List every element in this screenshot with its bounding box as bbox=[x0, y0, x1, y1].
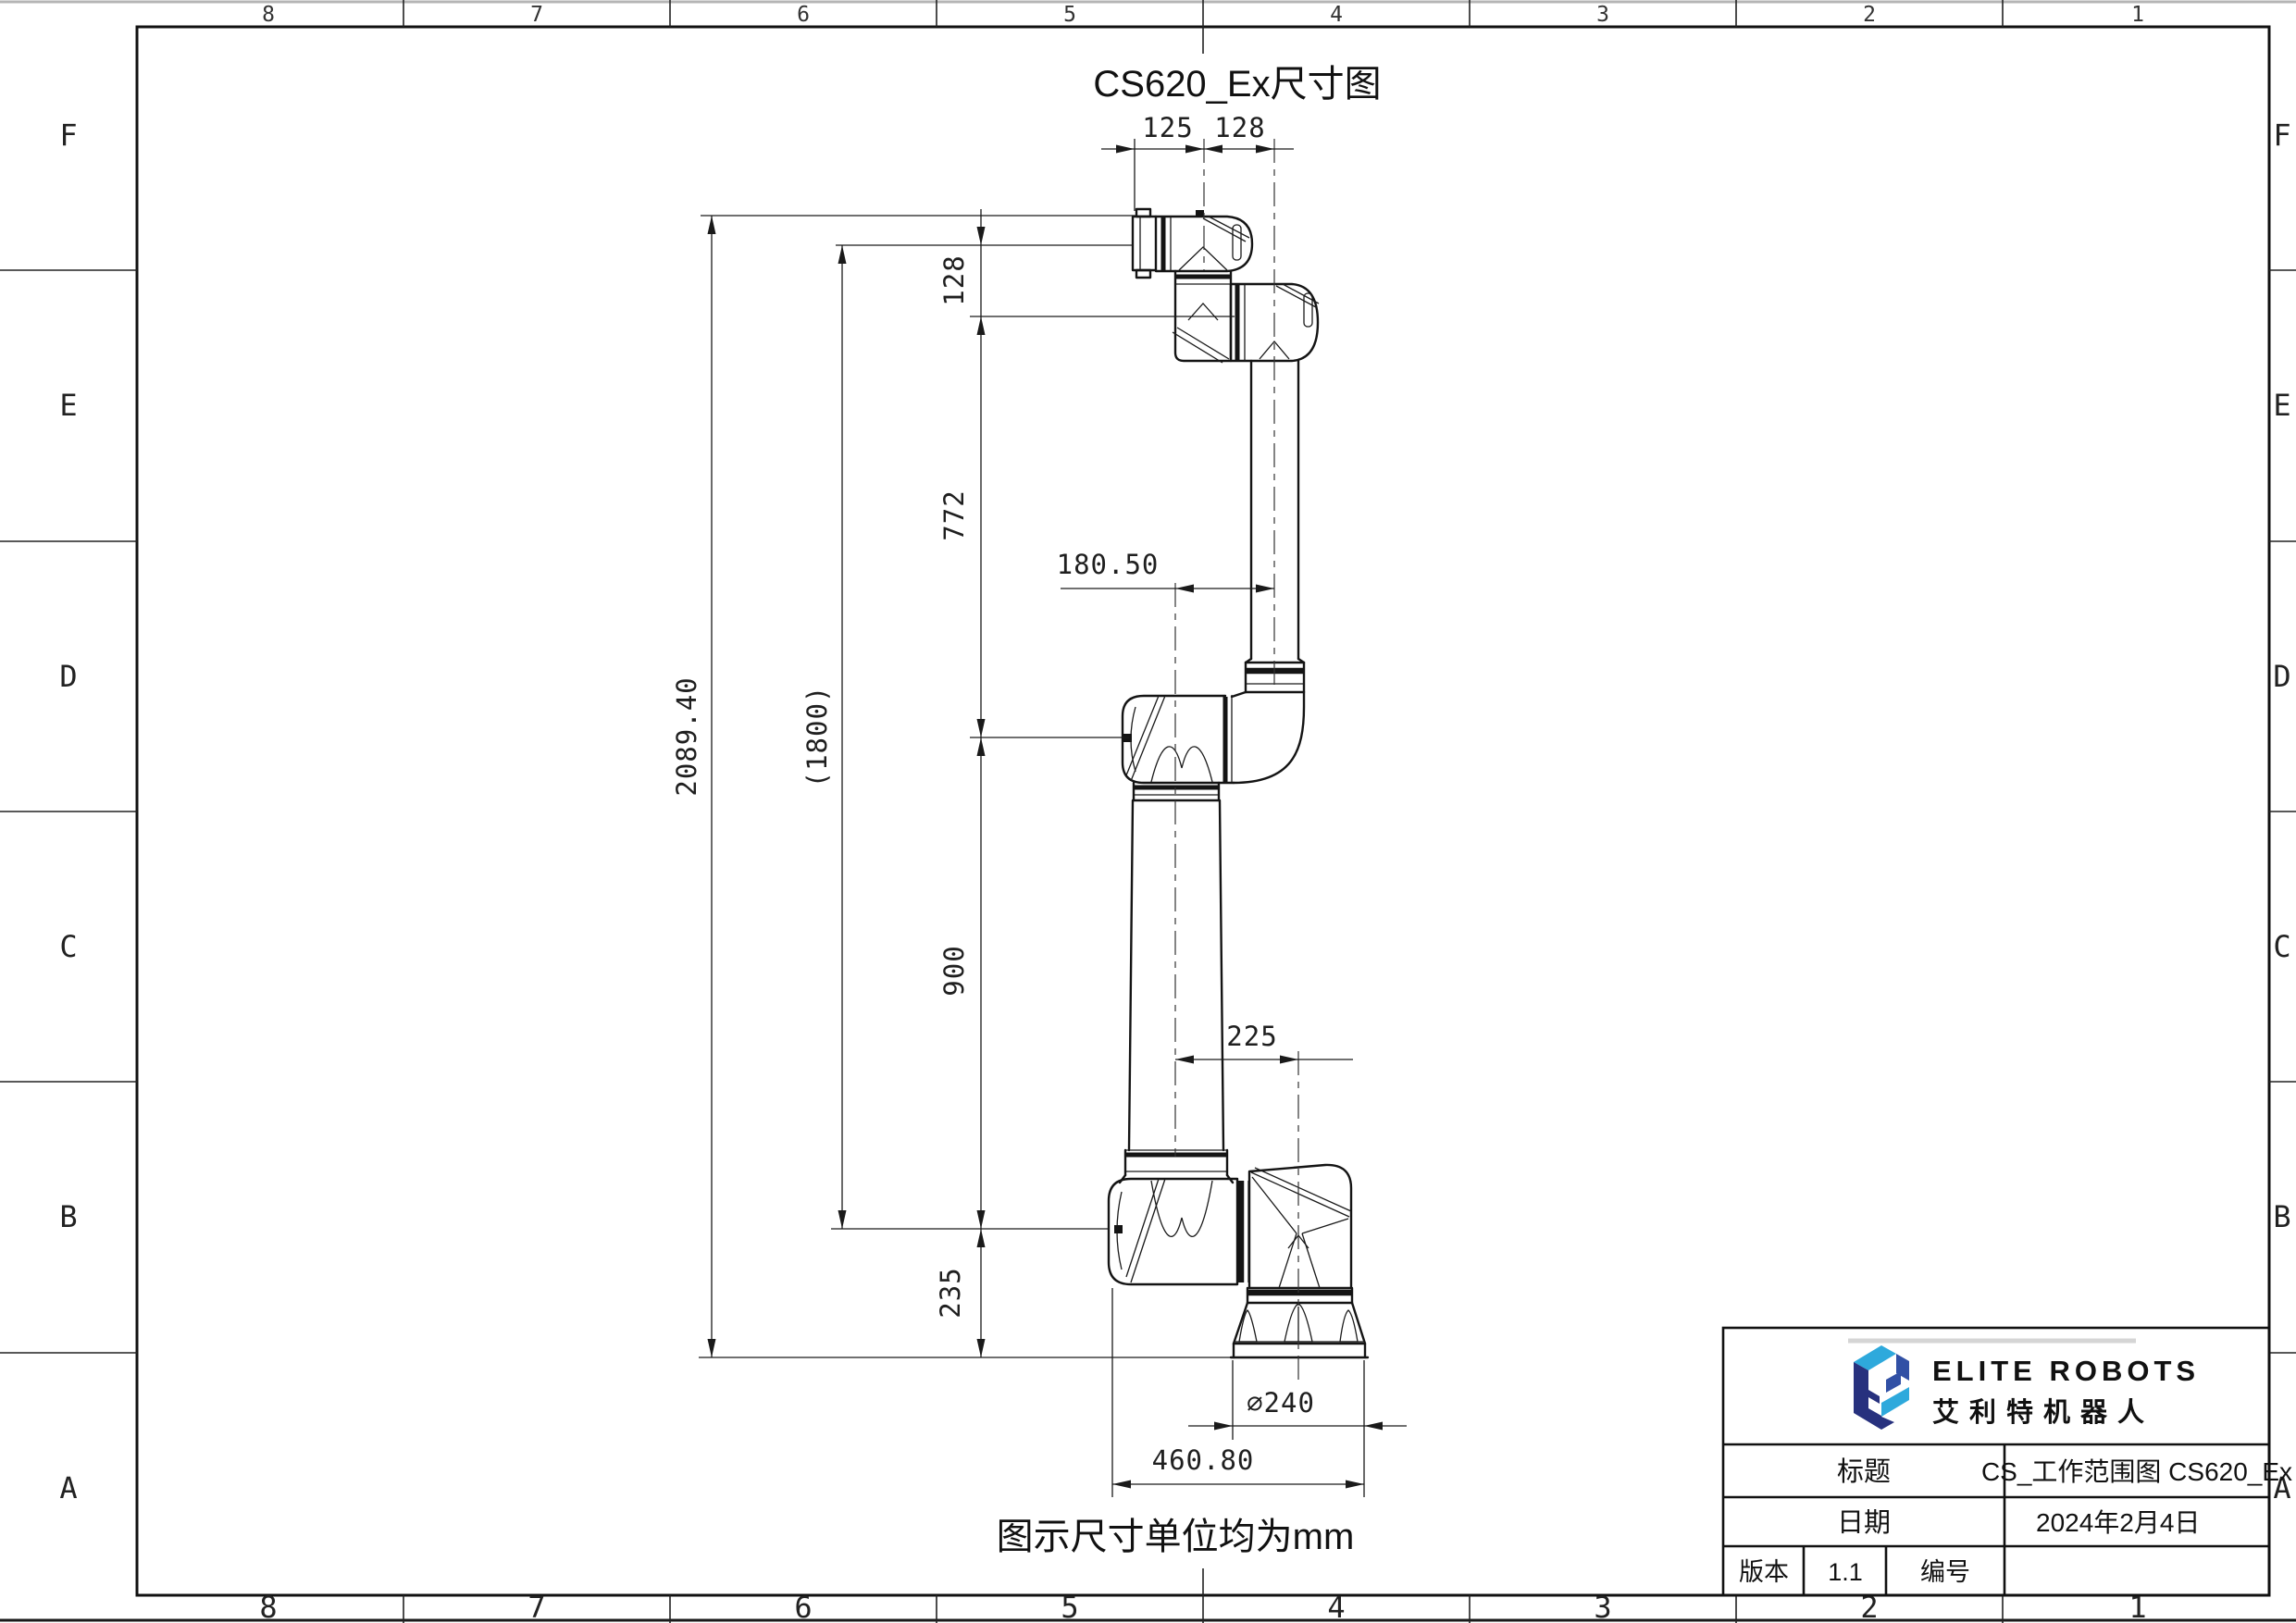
version-value: 1.1 bbox=[1828, 1558, 1863, 1586]
zone-row-right: F bbox=[2273, 118, 2290, 153]
number-label: 编号 bbox=[1920, 1558, 1970, 1586]
date-value: 2024年2月4日 bbox=[2036, 1508, 2200, 1537]
zone-col-top: 8 bbox=[262, 3, 275, 27]
robot-shoulder-j2 bbox=[1109, 1179, 1248, 1284]
dim-total-height: 2089.40 bbox=[671, 676, 702, 796]
title-label: 标题 bbox=[1837, 1456, 1891, 1487]
zone-row-left: E bbox=[59, 388, 77, 423]
zone-col-bottom: 7 bbox=[527, 1590, 545, 1623]
robot-lower-arm bbox=[1120, 800, 1233, 1183]
zone-col-top: 4 bbox=[1330, 3, 1343, 27]
dim-base-width: 460.80 bbox=[1152, 1444, 1255, 1476]
page-title: CS620_Ex尺寸图 bbox=[1093, 64, 1381, 105]
dim-shoulder-offset: 225 bbox=[1226, 1021, 1277, 1052]
zone-row-right: E bbox=[2273, 388, 2290, 423]
zone-col-bottom: 5 bbox=[1061, 1590, 1078, 1623]
version-label: 版本 bbox=[1739, 1558, 1789, 1586]
zone-row-left: D bbox=[59, 659, 77, 694]
zone-col-top: 6 bbox=[797, 3, 810, 27]
dim-wrist-drop: 128 bbox=[938, 254, 970, 305]
dim-flange-offset: 125 bbox=[1142, 112, 1193, 143]
dim-elbow-offset: 180.50 bbox=[1057, 549, 1160, 580]
dim-upper-arm: 772 bbox=[938, 489, 970, 540]
dim-working-span: (1800) bbox=[801, 686, 833, 788]
zone-col-bottom: 3 bbox=[1594, 1590, 1611, 1623]
brand-name-en: ELITE ROBOTS bbox=[1932, 1355, 2200, 1387]
dim-wrist-offset: 128 bbox=[1214, 112, 1265, 143]
zone-row-left: A bbox=[59, 1470, 77, 1505]
zone-row-left: C bbox=[59, 929, 77, 964]
robot-wrist-j6 bbox=[1133, 209, 1252, 278]
drawing-sheet: 8 7 6 5 4 3 2 1 8 7 6 5 4 3 2 1 F E D C … bbox=[0, 0, 2296, 1623]
units-caption: 图示尺寸单位均为mm bbox=[997, 1517, 1355, 1557]
zone-row-right: D bbox=[2273, 659, 2290, 694]
title-block: ELITE ROBOTS 艾利特机器人 标题 CS_工作范围图 CS620_Ex… bbox=[1723, 1328, 2292, 1595]
brand-name-cn: 艾利特机器人 bbox=[1932, 1397, 2154, 1428]
robot-arm bbox=[1109, 139, 1368, 1381]
robot-elbow-j3 bbox=[1123, 692, 1304, 800]
zone-col-top: 5 bbox=[1063, 3, 1076, 27]
zone-col-top: 7 bbox=[530, 3, 543, 27]
date-label: 日期 bbox=[1837, 1508, 1891, 1538]
zone-row-right: C bbox=[2273, 929, 2290, 964]
robot-base bbox=[1231, 1165, 1368, 1357]
zone-col-bottom: 4 bbox=[1327, 1590, 1345, 1623]
dimension-annotations: 125 128 128 772 900 235 2089.40 (1800) 1… bbox=[671, 112, 1407, 1497]
zone-row-left: F bbox=[59, 118, 77, 153]
dim-base-height: 235 bbox=[935, 1267, 966, 1318]
title-value: CS_工作范围图 CS620_Ex bbox=[1981, 1457, 2292, 1486]
zone-col-bottom: 6 bbox=[794, 1590, 812, 1623]
zone-col-top: 2 bbox=[1863, 3, 1876, 27]
dim-lower-arm: 900 bbox=[938, 945, 970, 996]
zone-col-top: 3 bbox=[1596, 3, 1609, 27]
zone-col-top: 1 bbox=[2131, 3, 2144, 27]
zone-row-right: B bbox=[2273, 1199, 2290, 1234]
dim-base-diameter: ⌀240 bbox=[1247, 1387, 1315, 1419]
zone-col-bottom: 8 bbox=[259, 1590, 277, 1623]
zone-row-left: B bbox=[59, 1199, 77, 1234]
